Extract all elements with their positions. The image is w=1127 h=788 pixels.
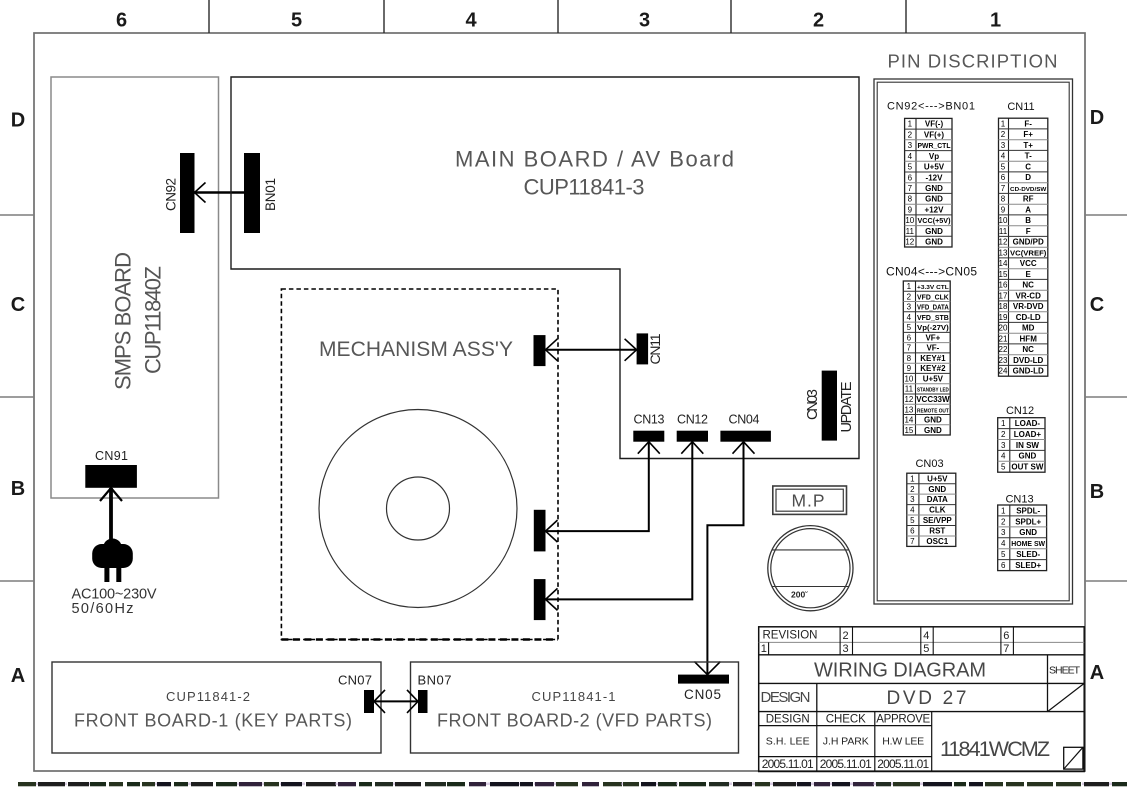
svg-text:GND: GND: [925, 184, 943, 193]
svg-text:10: 10: [999, 216, 1008, 225]
svg-text:CN03: CN03: [805, 389, 821, 420]
svg-text:8: 8: [908, 195, 913, 204]
svg-text:200˘: 200˘: [791, 590, 808, 600]
svg-text:D: D: [1025, 173, 1031, 182]
svg-text:3: 3: [639, 10, 650, 32]
svg-text:CN04<--->CN05: CN04<--->CN05: [886, 265, 977, 279]
svg-text:VF-: VF-: [926, 344, 939, 353]
svg-text:SPDL-: SPDL-: [1016, 506, 1040, 515]
svg-text:STANDBY LED: STANDBY LED: [917, 388, 949, 394]
svg-text:GND: GND: [924, 416, 942, 425]
svg-text:3: 3: [908, 141, 913, 150]
svg-text:VR-CD: VR-CD: [1016, 292, 1042, 301]
svg-text:MAIN BOARD / AV Board: MAIN BOARD / AV Board: [455, 147, 734, 172]
svg-text:4: 4: [908, 152, 913, 161]
svg-text:VC(VREF): VC(VREF): [1010, 251, 1046, 258]
svg-text:DATA: DATA: [927, 495, 948, 504]
svg-text:4: 4: [1001, 152, 1006, 161]
svg-text:CUP11840Z: CUP11840Z: [141, 266, 166, 374]
svg-text:PWR_CTL: PWR_CTL: [918, 143, 952, 150]
svg-text:7: 7: [908, 184, 913, 193]
svg-text:4: 4: [465, 10, 477, 32]
svg-text:7: 7: [907, 344, 912, 353]
svg-text:FRONT BOARD-1 (KEY PARTS): FRONT BOARD-1 (KEY PARTS): [74, 711, 352, 731]
svg-text:5: 5: [1001, 463, 1006, 472]
svg-text:3: 3: [1001, 528, 1006, 537]
svg-text:U+5V: U+5V: [924, 163, 945, 172]
svg-text:C: C: [1025, 163, 1031, 172]
svg-text:5: 5: [907, 323, 912, 332]
svg-text:13: 13: [999, 249, 1008, 258]
svg-text:FRONT BOARD-2 (VFD PARTS): FRONT BOARD-2 (VFD PARTS): [437, 711, 712, 731]
svg-text:U+5V: U+5V: [927, 474, 948, 483]
svg-text:1: 1: [910, 474, 915, 483]
svg-text:1: 1: [908, 120, 913, 129]
svg-text:GND/PD: GND/PD: [1013, 238, 1044, 247]
svg-text:4: 4: [923, 630, 929, 642]
svg-text:3: 3: [910, 495, 915, 504]
svg-text:7: 7: [910, 537, 915, 546]
svg-text:2: 2: [1001, 517, 1006, 526]
svg-text:20: 20: [999, 324, 1008, 333]
svg-text:CN92: CN92: [164, 178, 179, 211]
svg-text:3: 3: [843, 643, 849, 655]
svg-text:LOAD-: LOAD-: [1015, 419, 1041, 428]
svg-text:19: 19: [999, 313, 1008, 322]
svg-text:SPDL+: SPDL+: [1015, 517, 1041, 526]
svg-text:5: 5: [291, 10, 302, 32]
svg-text:BN07: BN07: [418, 673, 452, 688]
svg-text:4: 4: [1001, 452, 1006, 461]
svg-text:CD-LD: CD-LD: [1016, 313, 1041, 322]
svg-text:GND: GND: [1019, 528, 1037, 537]
svg-text:50/60Hz: 50/60Hz: [72, 601, 134, 617]
svg-text:A: A: [11, 665, 25, 687]
svg-text:H.W LEE: H.W LEE: [882, 736, 924, 748]
svg-text:CHECK: CHECK: [826, 714, 866, 726]
svg-text:16: 16: [999, 281, 1008, 290]
svg-text:C: C: [1090, 294, 1104, 316]
svg-text:DVD-LD: DVD-LD: [1013, 356, 1043, 365]
svg-text:SLED+: SLED+: [1015, 561, 1041, 570]
svg-text:F: F: [1026, 227, 1031, 236]
svg-text:CUP11841-1: CUP11841-1: [532, 689, 616, 704]
svg-text:8: 8: [907, 354, 912, 363]
svg-text:LOAD+: LOAD+: [1014, 430, 1042, 439]
svg-text:RF: RF: [1023, 195, 1034, 204]
svg-text:APPROVE: APPROVE: [876, 714, 930, 726]
svg-text:9: 9: [1001, 206, 1006, 215]
svg-text:PIN DISCRIPTION: PIN DISCRIPTION: [888, 51, 1058, 72]
svg-text:Vp(-27V): Vp(-27V): [917, 325, 949, 332]
svg-text:13: 13: [904, 405, 913, 414]
svg-text:NC: NC: [1022, 345, 1034, 354]
svg-text:D: D: [11, 110, 25, 132]
svg-text:MD: MD: [1022, 324, 1035, 333]
svg-text:CN13: CN13: [1005, 494, 1033, 506]
svg-text:GND: GND: [1019, 452, 1037, 461]
svg-text:17: 17: [999, 292, 1008, 301]
svg-text:SLED-: SLED-: [1016, 550, 1040, 559]
svg-text:8: 8: [1001, 195, 1006, 204]
svg-text:B: B: [1090, 481, 1104, 503]
svg-text:CUP11841-3: CUP11841-3: [524, 175, 645, 200]
svg-text:CD-DVD/SW: CD-DVD/SW: [1010, 187, 1047, 193]
svg-text:10: 10: [905, 216, 914, 225]
svg-text:3: 3: [1001, 141, 1006, 150]
svg-text:VFD_STB: VFD_STB: [917, 315, 949, 322]
svg-text:4: 4: [1001, 539, 1006, 548]
svg-text:B: B: [11, 478, 25, 500]
svg-text:U+5V: U+5V: [923, 375, 944, 384]
svg-text:11: 11: [905, 385, 914, 394]
svg-text:2: 2: [1001, 430, 1006, 439]
svg-text:A: A: [1090, 662, 1104, 684]
svg-text:GND: GND: [925, 195, 943, 204]
svg-text:6: 6: [1001, 561, 1006, 570]
svg-text:SHEET: SHEET: [1049, 665, 1081, 677]
svg-text:J.H PARK: J.H PARK: [823, 736, 869, 748]
svg-text:NC: NC: [1022, 281, 1034, 290]
svg-text:GND: GND: [925, 238, 943, 247]
svg-text:S.H. LEE: S.H. LEE: [766, 736, 810, 748]
svg-text:CN04: CN04: [729, 413, 760, 427]
svg-text:CLK: CLK: [929, 506, 946, 515]
svg-text:14: 14: [904, 416, 913, 425]
svg-text:D: D: [1090, 107, 1104, 129]
svg-text:REVISION: REVISION: [763, 630, 818, 642]
svg-text:1: 1: [761, 643, 767, 655]
svg-text:CN13: CN13: [634, 413, 665, 427]
svg-text:5: 5: [923, 643, 929, 655]
svg-text:GND: GND: [925, 227, 943, 236]
svg-text:2: 2: [908, 130, 913, 139]
svg-text:VCC33W: VCC33W: [916, 395, 950, 404]
svg-text:11: 11: [999, 227, 1008, 236]
svg-text:CN12: CN12: [677, 413, 708, 427]
svg-text:1: 1: [907, 282, 912, 291]
svg-text:5: 5: [910, 516, 915, 525]
svg-text:1: 1: [990, 10, 1001, 32]
svg-text:23: 23: [999, 356, 1008, 365]
svg-text:11841WCMZ: 11841WCMZ: [940, 737, 1050, 761]
svg-text:REMOTE OUT: REMOTE OUT: [917, 408, 949, 414]
svg-text:14: 14: [999, 259, 1008, 268]
svg-text:KEY#1: KEY#1: [920, 354, 946, 363]
svg-text:6: 6: [116, 10, 127, 32]
svg-text:24: 24: [999, 367, 1008, 376]
svg-text:SMPS BOARD: SMPS BOARD: [111, 252, 136, 390]
svg-text:GND: GND: [928, 485, 946, 494]
svg-text:18: 18: [999, 302, 1008, 311]
svg-text:CN05: CN05: [684, 687, 721, 702]
svg-text:OSC1: OSC1: [926, 537, 948, 546]
svg-text:12: 12: [905, 238, 914, 247]
svg-text:6: 6: [910, 527, 915, 536]
svg-text:DESIGN: DESIGN: [761, 689, 811, 706]
svg-text:1: 1: [1001, 120, 1006, 129]
svg-text:DVD 27: DVD 27: [887, 688, 967, 709]
svg-text:CN11: CN11: [647, 333, 663, 364]
svg-text:12: 12: [904, 395, 913, 404]
svg-text:VF(+): VF(+): [924, 130, 945, 139]
svg-text:6: 6: [907, 333, 912, 342]
svg-text:IN SW: IN SW: [1016, 441, 1040, 450]
svg-text:4: 4: [907, 313, 912, 322]
svg-text:+3.3V CTL: +3.3V CTL: [917, 285, 949, 291]
svg-text:3: 3: [1001, 441, 1006, 450]
svg-text:T-: T-: [1025, 152, 1032, 161]
svg-text:VF+: VF+: [925, 333, 940, 342]
svg-text:VFD_DATA: VFD_DATA: [917, 305, 949, 312]
svg-text:1: 1: [1001, 506, 1006, 515]
svg-text:MECHANISM ASS'Y: MECHANISM ASS'Y: [319, 338, 513, 361]
svg-text:1: 1: [1001, 419, 1006, 428]
svg-text:-12V: -12V: [926, 173, 944, 182]
svg-text:2005.11.01: 2005.11.01: [820, 757, 872, 771]
svg-text:11: 11: [906, 227, 915, 236]
svg-text:CUP11841-2: CUP11841-2: [166, 689, 250, 704]
svg-text:DESIGN: DESIGN: [766, 714, 810, 726]
svg-text:VFD_CLK: VFD_CLK: [917, 294, 949, 301]
svg-text:F-: F-: [1024, 120, 1032, 129]
svg-text:T+: T+: [1023, 141, 1033, 150]
svg-text:+12V: +12V: [925, 205, 945, 214]
svg-text:OUT SW: OUT SW: [1011, 463, 1043, 472]
svg-text:RST: RST: [929, 527, 945, 536]
svg-text:2: 2: [910, 485, 915, 494]
svg-text:15: 15: [999, 270, 1008, 279]
svg-text:VCC(+5V): VCC(+5V): [918, 218, 951, 225]
svg-text:5: 5: [1001, 550, 1006, 559]
svg-text:GND: GND: [924, 426, 942, 435]
svg-text:CN92<--->BN01: CN92<--->BN01: [887, 101, 975, 113]
svg-text:2005.11.01: 2005.11.01: [877, 757, 929, 771]
svg-text:CN03: CN03: [915, 458, 943, 470]
svg-text:UPDATE: UPDATE: [839, 381, 855, 432]
svg-text:21: 21: [999, 335, 1008, 344]
svg-text:CN11: CN11: [1007, 101, 1034, 113]
svg-text:5: 5: [1001, 163, 1006, 172]
svg-text:7: 7: [1003, 643, 1009, 655]
svg-text:6: 6: [1001, 173, 1006, 182]
svg-text:CN07: CN07: [338, 673, 372, 688]
svg-text:BN01: BN01: [263, 178, 278, 211]
svg-text:2: 2: [1001, 130, 1006, 139]
svg-text:5: 5: [908, 163, 913, 172]
svg-text:GND-LD: GND-LD: [1013, 367, 1044, 376]
svg-text:CN12: CN12: [1006, 405, 1034, 417]
svg-text:3: 3: [907, 303, 912, 312]
svg-text:VCC: VCC: [1020, 259, 1037, 268]
svg-text:12: 12: [999, 238, 1008, 247]
svg-text:22: 22: [999, 345, 1008, 354]
svg-text:6: 6: [908, 173, 913, 182]
svg-text:CN91: CN91: [95, 449, 128, 463]
svg-text:2005.11.01: 2005.11.01: [762, 757, 814, 771]
svg-text:4: 4: [910, 506, 915, 515]
svg-text:F+: F+: [1023, 130, 1033, 139]
svg-text:2: 2: [843, 630, 849, 642]
svg-text:A: A: [1025, 206, 1031, 215]
svg-text:M.P: M.P: [792, 491, 825, 511]
svg-text:2: 2: [813, 10, 824, 32]
svg-text:15: 15: [904, 426, 913, 435]
svg-text:B: B: [1025, 216, 1031, 225]
svg-text:SE/VPP: SE/VPP: [923, 516, 953, 525]
svg-text:10: 10: [904, 375, 913, 384]
svg-text:6: 6: [1003, 630, 1009, 642]
svg-text:VF(-): VF(-): [925, 120, 944, 129]
svg-text:WIRING DIAGRAM: WIRING DIAGRAM: [814, 660, 986, 682]
svg-text:KEY#2: KEY#2: [920, 364, 946, 373]
svg-text:7: 7: [1001, 184, 1006, 193]
svg-text:E: E: [1026, 270, 1032, 279]
svg-text:2: 2: [907, 292, 912, 301]
svg-text:VR-DVD: VR-DVD: [1013, 302, 1044, 311]
svg-text:9: 9: [907, 364, 912, 373]
svg-text:9: 9: [908, 205, 913, 214]
svg-text:C: C: [11, 294, 25, 316]
svg-text:HOME SW: HOME SW: [1011, 541, 1045, 548]
svg-text:HFM: HFM: [1020, 335, 1038, 344]
svg-text:Vp: Vp: [929, 152, 939, 161]
